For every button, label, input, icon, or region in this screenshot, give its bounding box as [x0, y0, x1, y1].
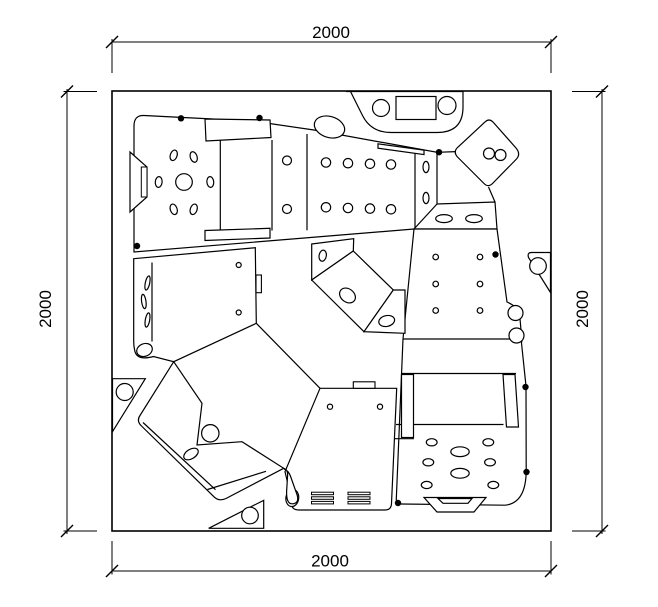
dimension-label-right: 2000 [573, 290, 592, 328]
nested-parts-geometry [61, 36, 608, 577]
dimension-label-left: 2000 [36, 290, 55, 328]
dimension-label-bottom: 2000 [311, 552, 349, 571]
nesting-drawing: 2000 2000 2000 2000 [0, 0, 658, 607]
dimension-label-top: 2000 [312, 23, 350, 42]
cad-nesting-sheet-view: 2000 2000 2000 2000 [0, 0, 658, 607]
